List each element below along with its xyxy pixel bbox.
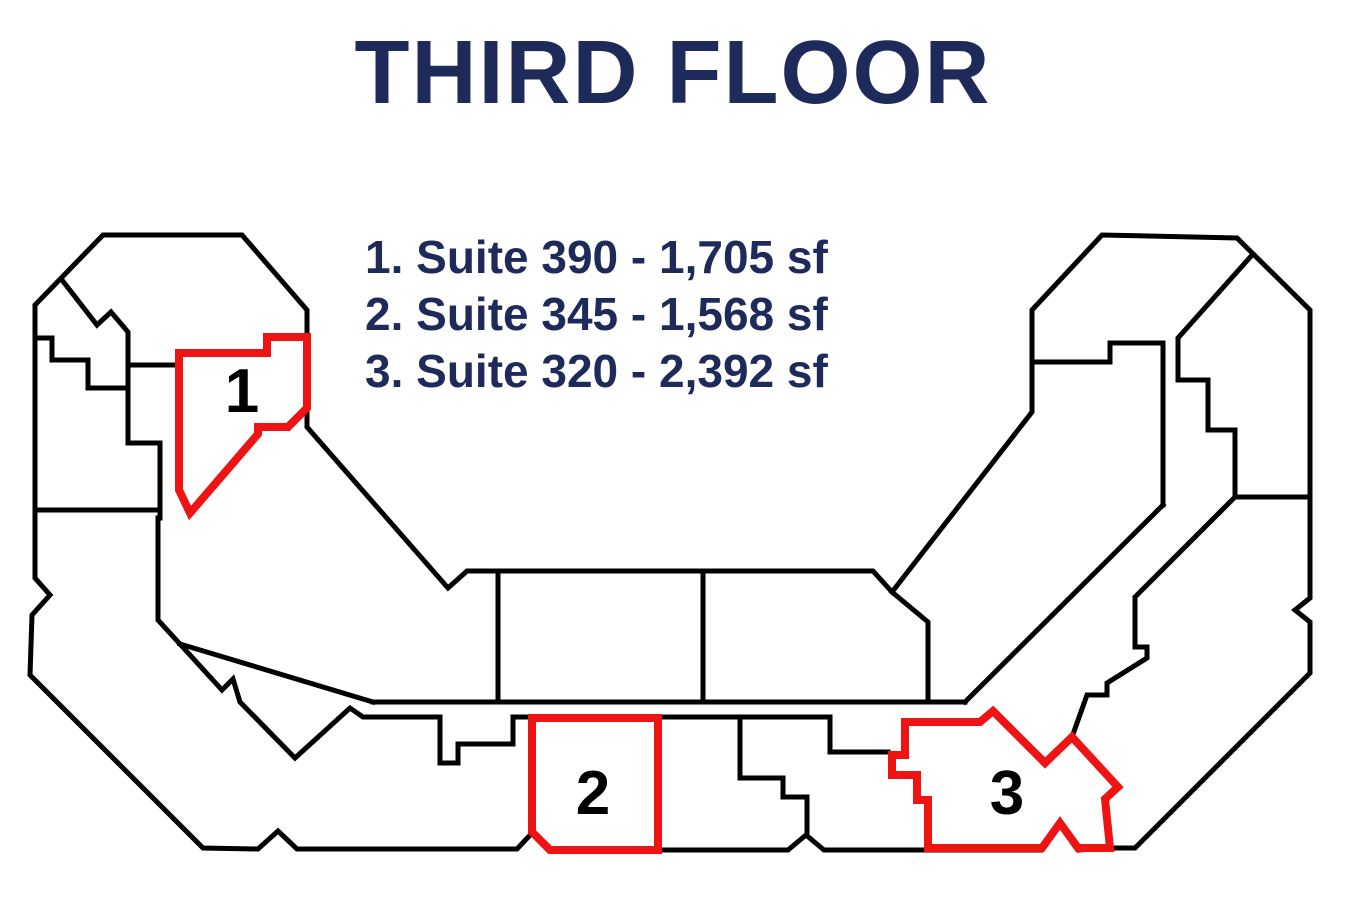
suite-3-number-label: 3 bbox=[990, 763, 1024, 825]
building-outline bbox=[30, 235, 1310, 850]
suite-1-number-label: 1 bbox=[225, 361, 259, 423]
suite-2-number-label: 2 bbox=[576, 763, 610, 825]
floorplan-canvas bbox=[0, 0, 1346, 900]
floorplan-page: THIRD FLOOR 1. Suite 390 - 1,705 sf 2. S… bbox=[0, 0, 1346, 900]
